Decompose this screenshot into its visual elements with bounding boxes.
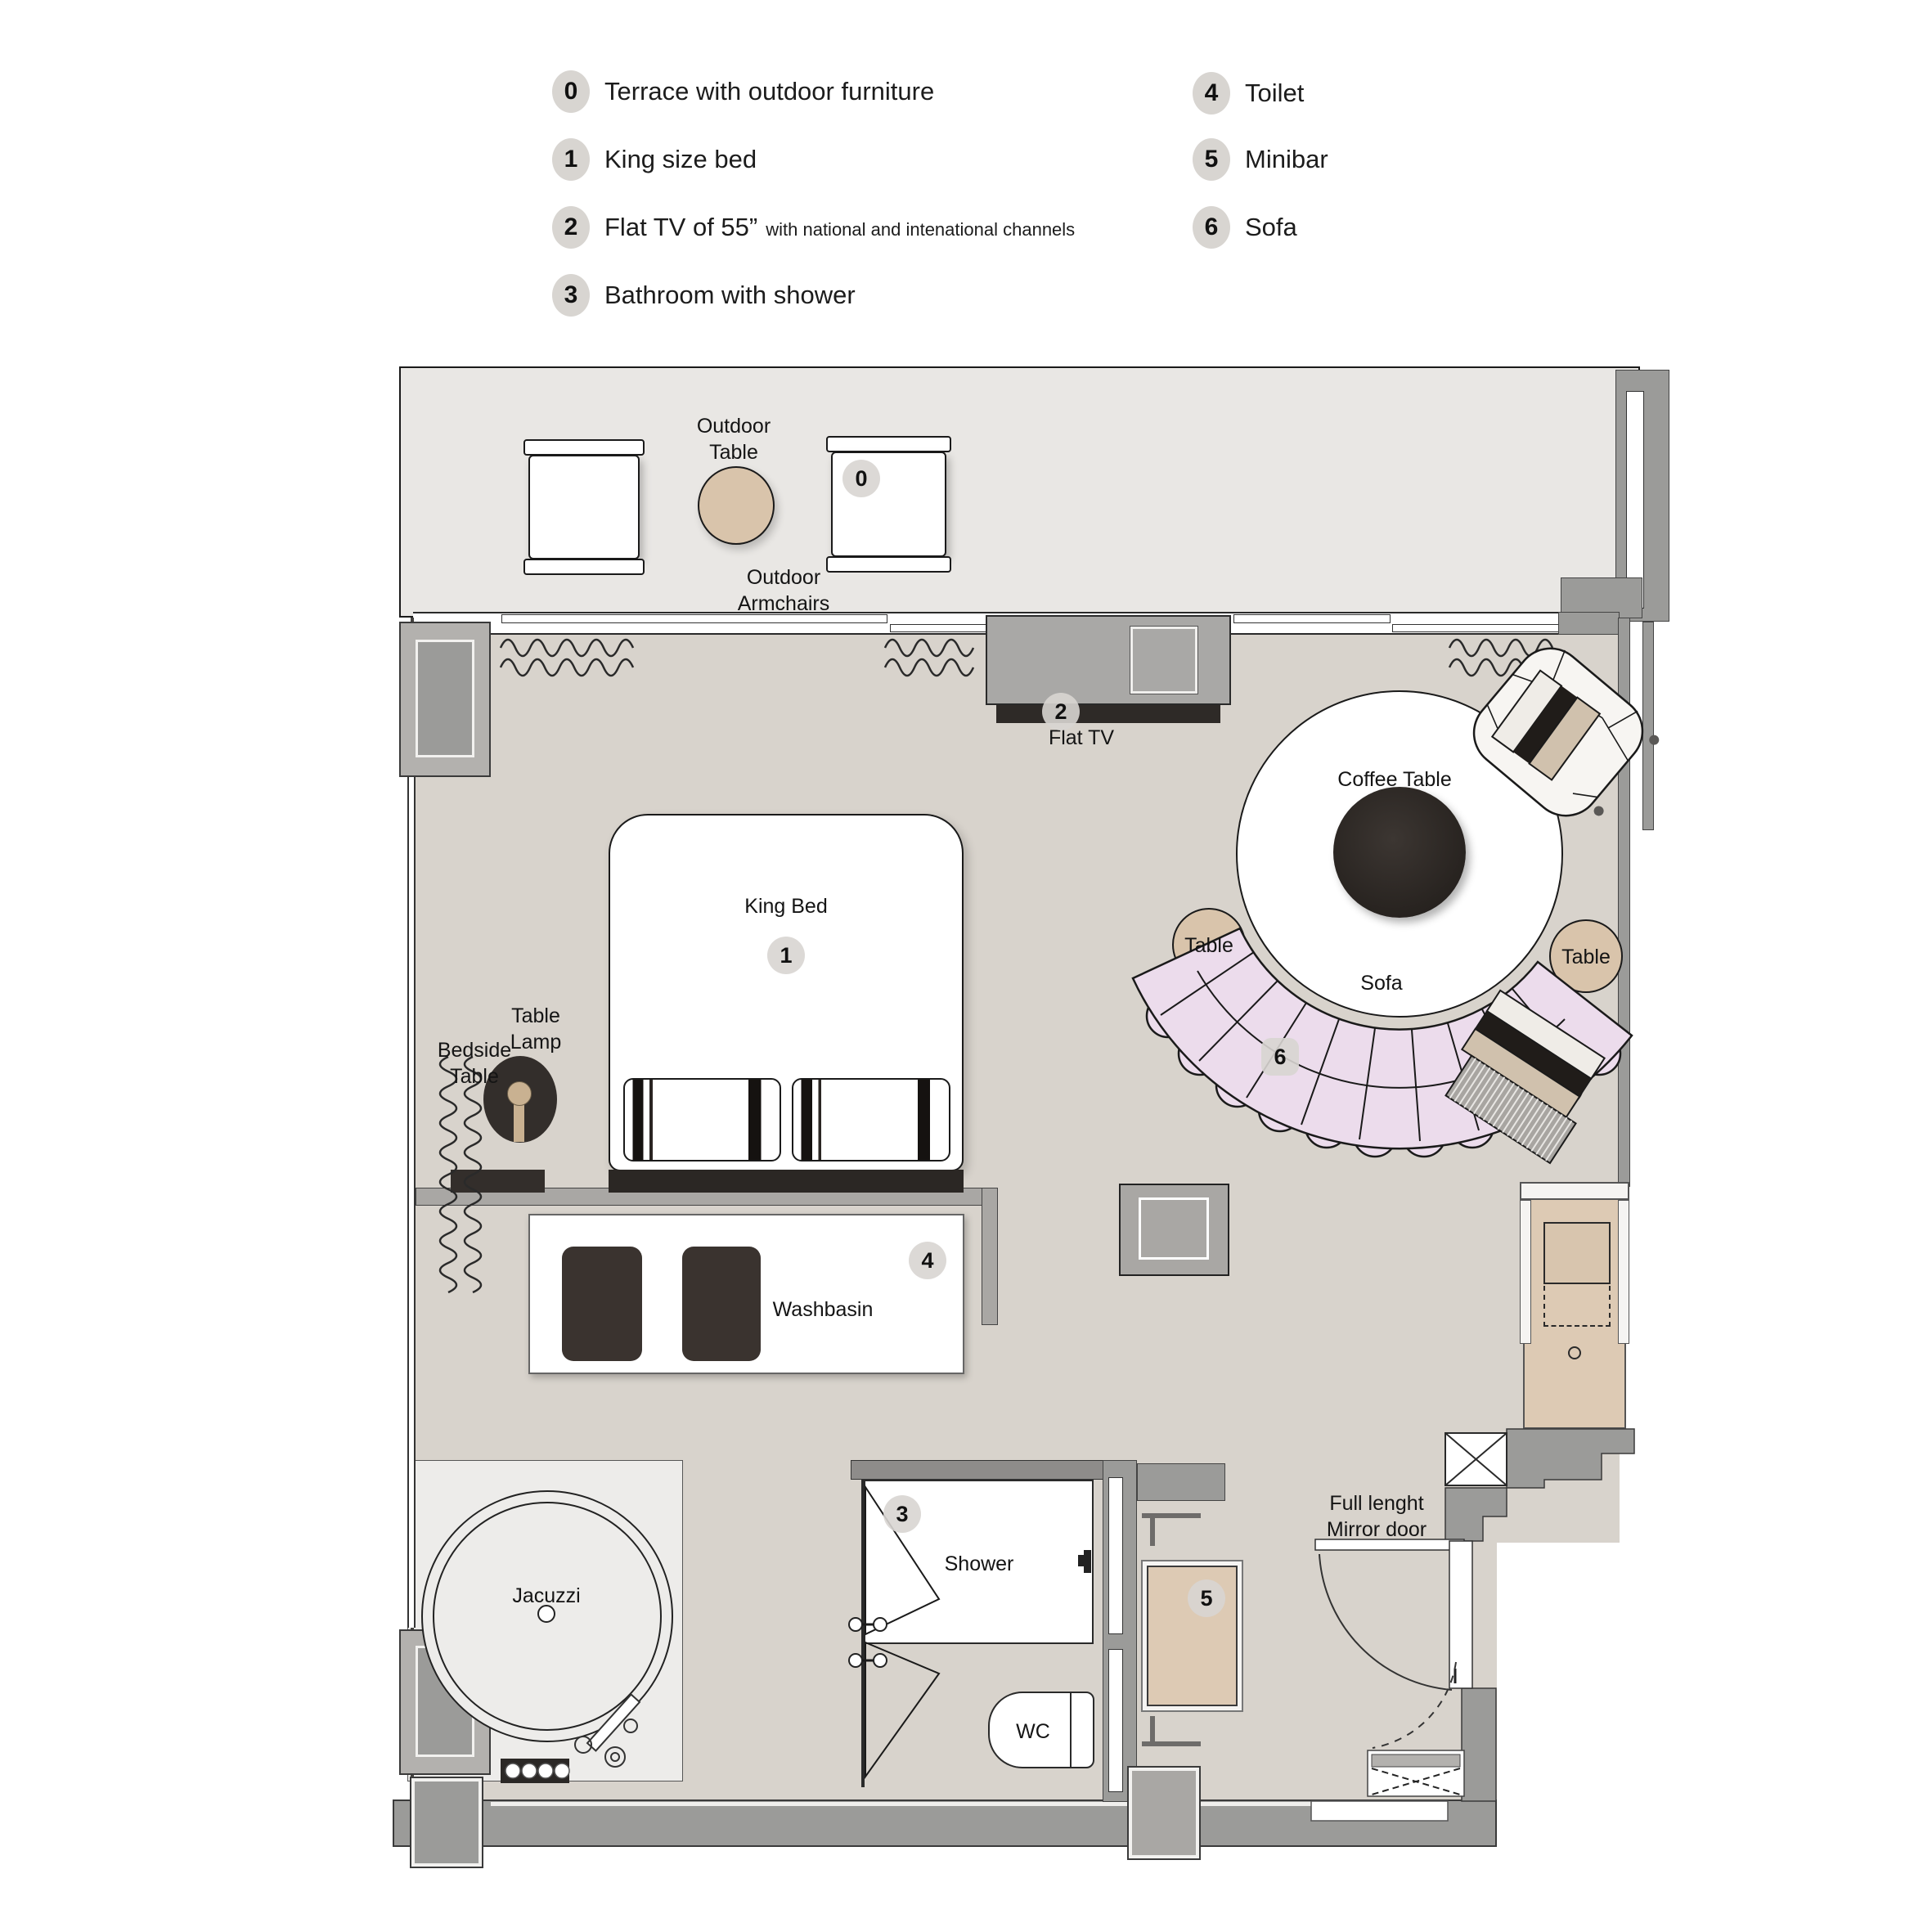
bottom-wall-inner-line <box>491 1802 1333 1806</box>
legend-badge-0: 0 <box>552 70 590 113</box>
outdoor-table-label: Outdoor Table <box>672 413 795 465</box>
outdoor-table <box>698 466 775 545</box>
outdoor-armchair-left-arm <box>523 439 645 456</box>
badge-shower: 3 <box>883 1495 921 1533</box>
flat-tv <box>996 705 1220 723</box>
mirror-door-label: Full lenght Mirror door <box>1305 1490 1449 1543</box>
badge-washbasin: 4 <box>909 1242 946 1279</box>
desk-stool-pushed <box>1543 1286 1611 1327</box>
legend-badge-5: 5 <box>1193 138 1230 181</box>
sink <box>562 1247 642 1361</box>
left-window <box>407 777 416 1628</box>
bedside-shelf <box>451 1170 545 1193</box>
legend-item-bathroom: 3 Bathroom with shower <box>552 274 856 317</box>
pocket-door-panel <box>1108 1477 1123 1634</box>
tv-console-drawer <box>1130 627 1197 694</box>
legend-item-toilet: 4 Toilet <box>1193 72 1304 115</box>
desk-knob <box>1568 1346 1581 1359</box>
legend-label-6: Sofa <box>1245 213 1297 242</box>
washbasin-side-wall <box>982 1188 998 1325</box>
desk-stool <box>1543 1222 1611 1284</box>
badge-minibar: 5 <box>1188 1579 1225 1617</box>
legend-label-2: Flat TV of 55”with national and intenati… <box>604 213 1075 242</box>
right-wall-fin <box>1642 622 1654 830</box>
bathroom-corner-block <box>1137 1463 1225 1501</box>
legend-item-terrace: 0 Terrace with outdoor furniture <box>552 70 934 113</box>
badge-sofa: 6 <box>1261 1038 1299 1076</box>
legend-label-4: Toilet <box>1245 79 1304 108</box>
shower-door-track <box>861 1480 865 1787</box>
legend-item-bed: 1 King size bed <box>552 138 757 181</box>
side-table-left-label: Table <box>1176 932 1242 959</box>
jacuzzi-label: Jacuzzi <box>497 1583 595 1609</box>
floorplan-page: 0 Terrace with outdoor furniture 1 King … <box>0 0 1932 1932</box>
legend-label-3: Bathroom with shower <box>604 281 856 310</box>
terrace-right-window <box>1626 391 1644 609</box>
pillow-right <box>792 1078 950 1161</box>
badge-tv: 2 <box>1042 693 1080 730</box>
outdoor-armchair-left-arm <box>523 559 645 575</box>
outdoor-armchair-right-arm <box>826 436 951 452</box>
outdoor-armchairs-label: Outdoor Armchairs <box>702 564 865 617</box>
outdoor-armchair-left <box>528 455 640 559</box>
column <box>399 622 491 777</box>
headboard <box>609 1170 964 1193</box>
legend-item-minibar: 5 Minibar <box>1193 138 1328 181</box>
sliding-door-panel <box>1392 624 1559 632</box>
bedside-table-label: Bedside Table <box>425 1037 523 1090</box>
sliding-door-panel <box>1233 614 1391 623</box>
table-lamp-stem <box>514 1104 524 1142</box>
legend-item-sofa: 6 Sofa <box>1193 206 1297 249</box>
legend-item-tv: 2 Flat TV of 55”with national and intena… <box>552 206 1075 249</box>
legend-badge-6: 6 <box>1193 206 1230 249</box>
legend-badge-2: 2 <box>552 206 590 249</box>
king-bed-label: King Bed <box>721 893 851 919</box>
shower-label: Shower <box>930 1551 1028 1577</box>
legend-label-2-suffix: with national and intenational channels <box>766 219 1075 240</box>
sofa-label: Sofa <box>1341 970 1422 996</box>
wc-label: WC <box>1000 1719 1066 1745</box>
coffee-table <box>1333 787 1466 918</box>
desk-side-bar <box>1520 1200 1531 1344</box>
bathroom-top-wall <box>851 1460 1129 1480</box>
legend-badge-4: 4 <box>1193 72 1230 115</box>
washbasin-label: Washbasin <box>766 1296 880 1323</box>
legend-label-0: Terrace with outdoor furniture <box>604 77 934 106</box>
side-table-right-label: Table <box>1553 944 1619 970</box>
coffee-table-label: Coffee Table <box>1313 766 1476 793</box>
column <box>411 1778 482 1867</box>
legend-label-1: King size bed <box>604 145 757 174</box>
legend-badge-1: 1 <box>552 138 590 181</box>
badge-bed: 1 <box>767 937 805 974</box>
desk-top-bar <box>1520 1182 1629 1200</box>
desk-side-bar <box>1618 1200 1629 1344</box>
column-center <box>1119 1184 1229 1276</box>
pocket-door-panel <box>1108 1649 1123 1792</box>
badge-terrace: 0 <box>842 460 880 497</box>
bottom-wall <box>393 1799 1497 1847</box>
sink <box>682 1247 761 1361</box>
band-wall-segment <box>1558 612 1620 635</box>
right-wall <box>1618 618 1630 1187</box>
pillow-left <box>623 1078 781 1161</box>
column <box>1129 1768 1199 1858</box>
outside-mask <box>1497 1543 1636 1850</box>
legend-badge-3: 3 <box>552 274 590 317</box>
flat-tv-label: Flat TV <box>1016 725 1147 751</box>
legend-label-5: Minibar <box>1245 145 1328 174</box>
